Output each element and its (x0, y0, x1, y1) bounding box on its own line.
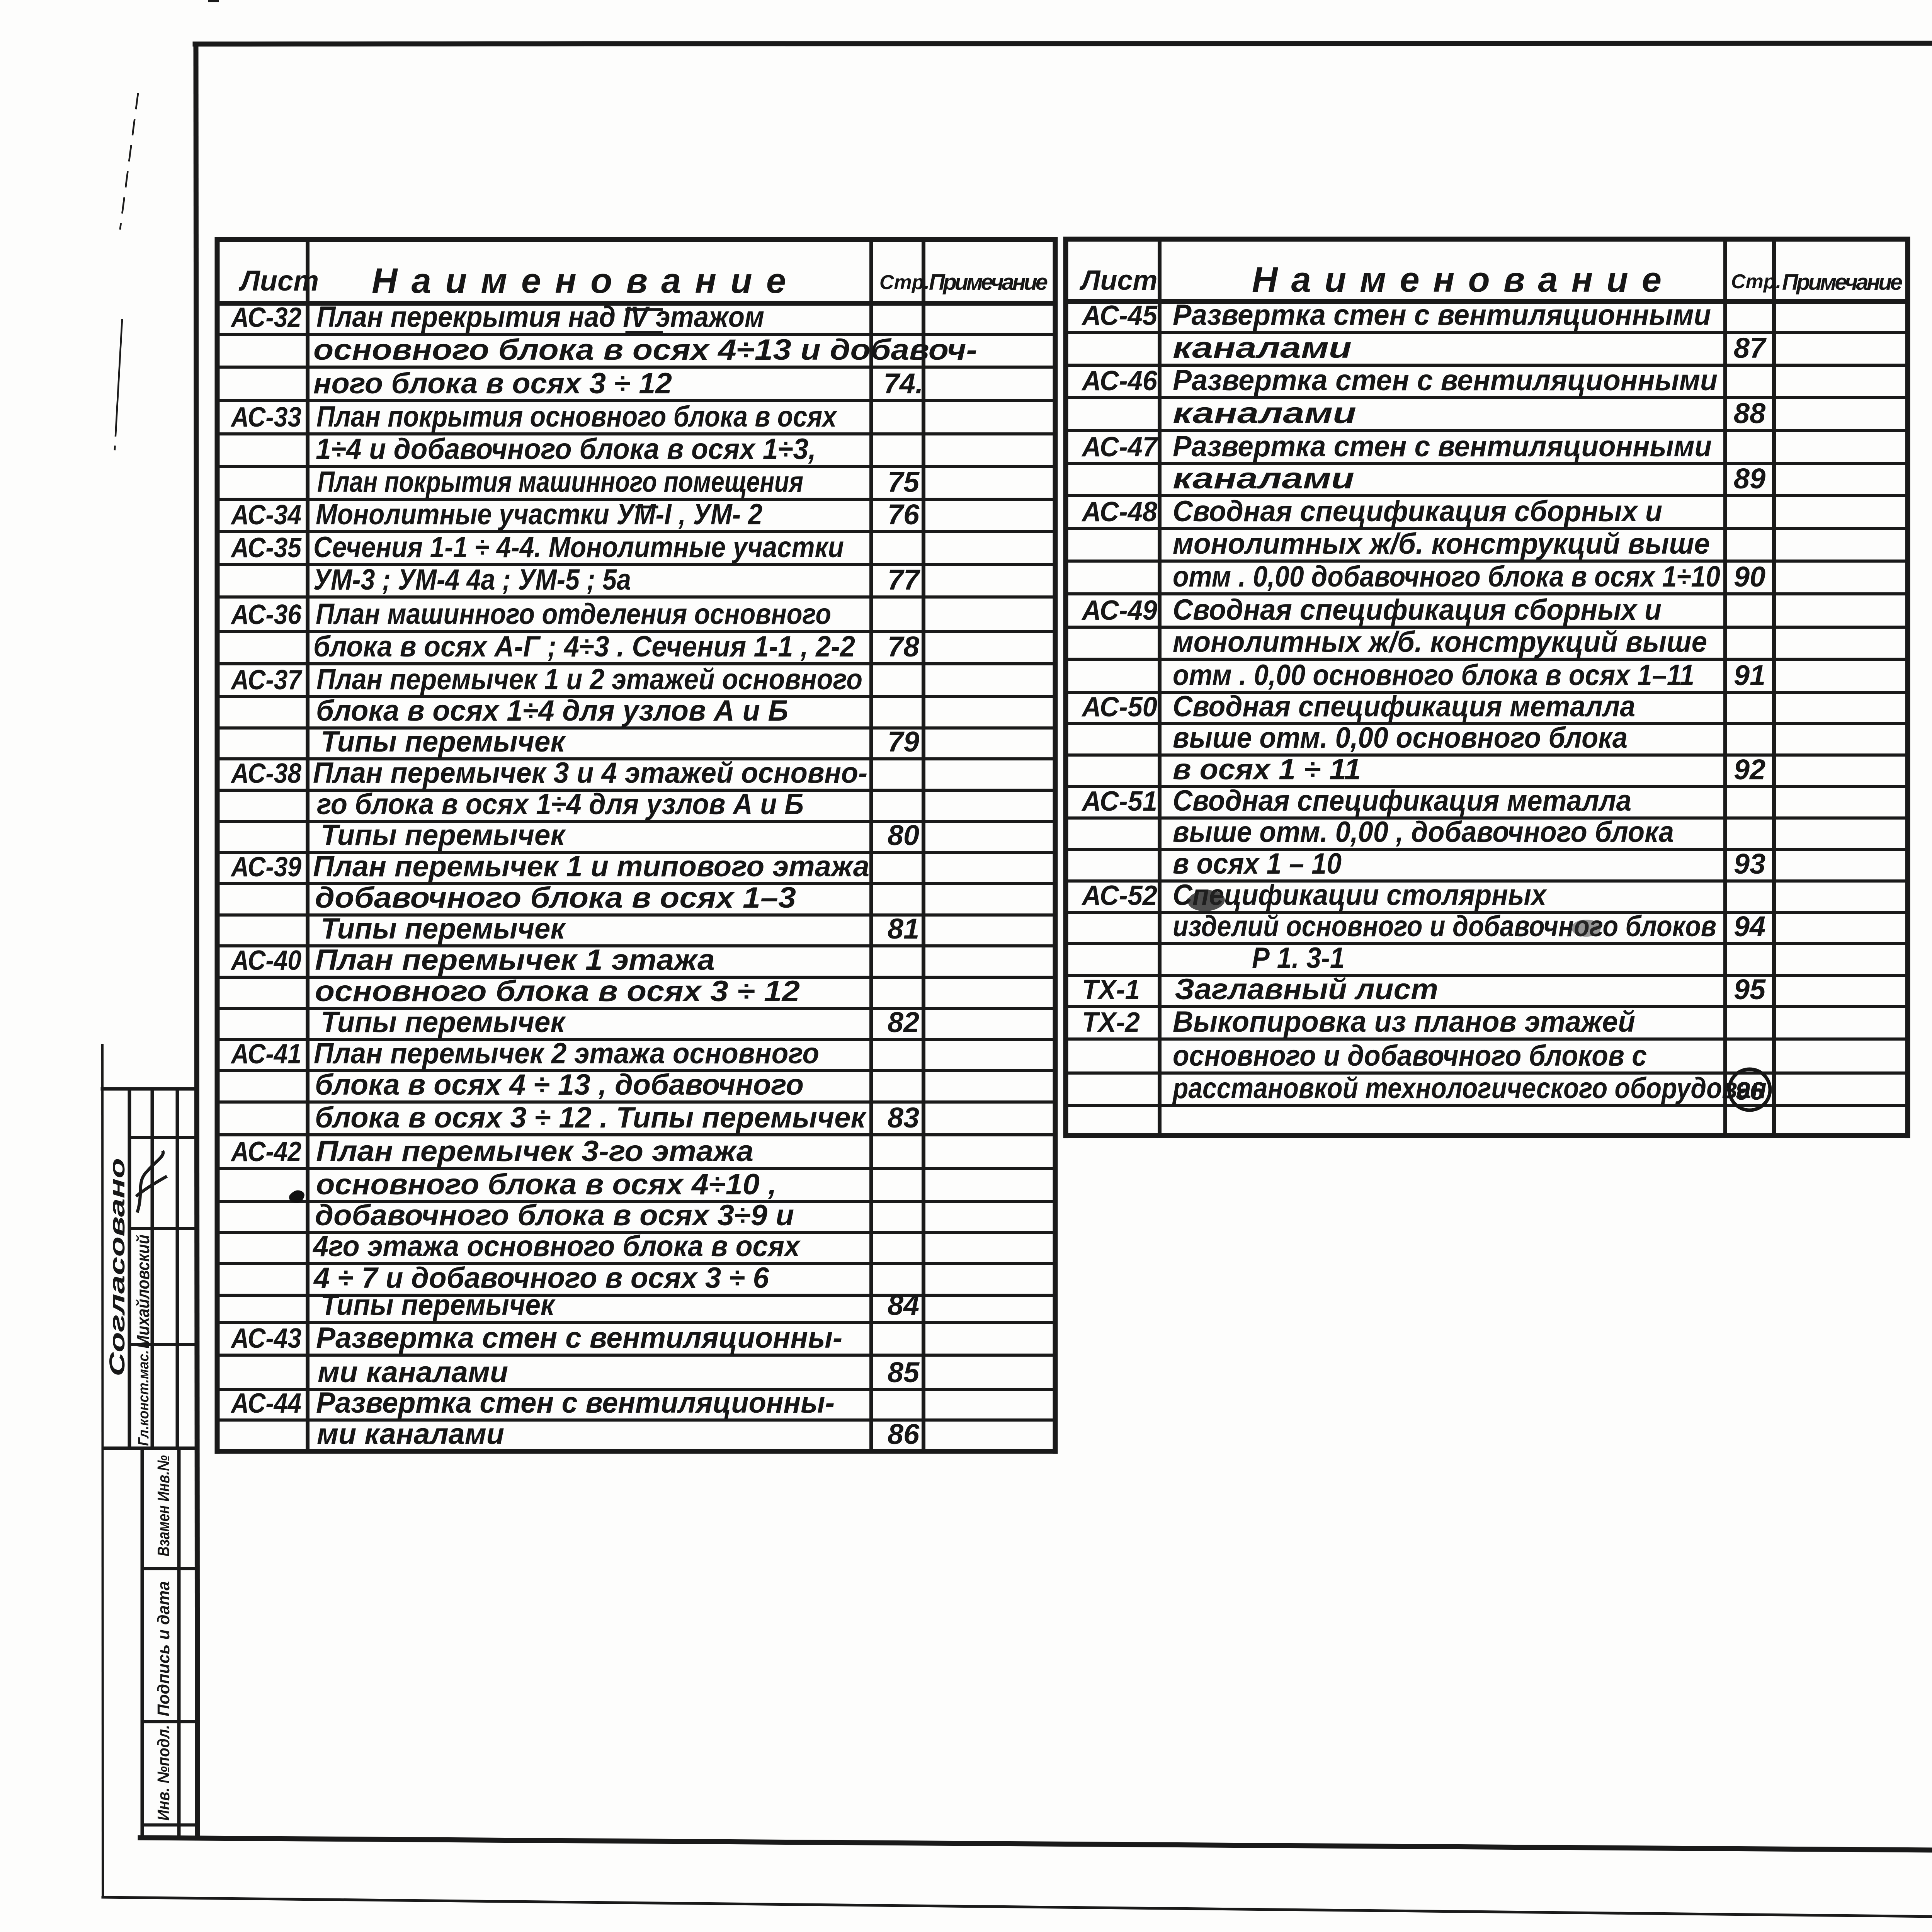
svg-text:блока в осях 4 ÷ 13 , доба: блока в осях 4 ÷ 13 , добавочного (315, 1068, 804, 1101)
svg-text:92: 92 (1734, 753, 1765, 786)
svg-text:Типы перемычек: Типы перемычек (321, 725, 566, 758)
svg-text:83: 83 (888, 1102, 919, 1134)
svg-text:АС-35: АС-35 (230, 532, 302, 563)
svg-text:АС-52: АС-52 (1081, 880, 1157, 911)
svg-text:АС-39: АС-39 (230, 852, 301, 883)
svg-text:ного блока в осях 3 ÷ 12: ного блока в осях 3 ÷ 12 (313, 367, 672, 400)
svg-text:90: 90 (1734, 561, 1765, 593)
svg-text:94: 94 (1734, 910, 1765, 942)
svg-text:основного блока в осях 4÷13: основного блока в осях 4÷13 и добавоч- (313, 333, 977, 366)
svg-text:АС-50: АС-50 (1081, 692, 1157, 723)
svg-text:Типы перемычек: Типы перемычек (321, 1289, 556, 1321)
svg-text:Михайловский: Михайловский (133, 1235, 153, 1349)
svg-text:Типы перемычек: Типы перемычек (321, 1006, 566, 1039)
svg-text:Сводная спецификация металл: Сводная спецификация металла (1173, 784, 1631, 817)
svg-text:Лист: Лист (238, 265, 319, 297)
svg-text:АС-47: АС-47 (1081, 432, 1158, 463)
svg-text:План перемычек 3-го этажа: План перемычек 3-го этажа (316, 1135, 753, 1168)
svg-text:отм . 0,00 добавочного блока: отм . 0,00 добавочного блока в осях 1÷10 (1173, 560, 1720, 593)
svg-text:ТХ-2: ТХ-2 (1082, 1007, 1140, 1038)
svg-text:75: 75 (888, 466, 920, 498)
svg-text:План перемычек 2 этажа осн: План перемычек 2 этажа основного (314, 1037, 819, 1070)
svg-text:Стр.: Стр. (879, 271, 930, 294)
svg-text:80: 80 (888, 819, 919, 851)
svg-text:ТХ-1: ТХ-1 (1082, 975, 1140, 1005)
svg-text:Развертка стен с вентиляци: Развертка стен с вентиляционны- (316, 1321, 842, 1354)
svg-text:монолитных ж/б. конструкций: монолитных ж/б. конструкций выше (1173, 527, 1710, 560)
svg-text:ми каналами: ми каналами (317, 1418, 504, 1451)
svg-text:АС-51: АС-51 (1081, 786, 1157, 817)
svg-text:Развертка стен с вентиляцио: Развертка стен с вентиляционны- (316, 1386, 835, 1419)
svg-text:План машинного отделения ос: План машинного отделения основного (316, 598, 831, 631)
svg-text:АС-42: АС-42 (230, 1136, 301, 1167)
svg-text:Сводная спецификация металл: Сводная спецификация металла (1173, 690, 1635, 723)
svg-text:План перемычек 1 и 2 этажей: План перемычек 1 и 2 этажей основного (316, 663, 862, 696)
svg-text:блока в осях 1÷4 для узло: блока в осях 1÷4 для узлов А и Б (316, 694, 788, 727)
svg-text:77: 77 (888, 564, 921, 596)
svg-text:добавочного блока в осях: добавочного блока в осях 3÷9 и (315, 1199, 794, 1232)
svg-text:Примечание: Примечание (929, 270, 1048, 295)
svg-text:расстановкой технологического: расстановкой технологического оборудован (1172, 1072, 1767, 1105)
svg-text:АС-32: АС-32 (230, 302, 301, 333)
svg-text:4го этажа основного блока: 4го этажа основного блока в осях (312, 1230, 801, 1263)
svg-text:87: 87 (1734, 332, 1767, 364)
svg-text:Сводная спецификация сборны: Сводная спецификация сборных и (1173, 594, 1662, 626)
svg-text:89: 89 (1734, 463, 1765, 495)
svg-text:Развертка стен с вентиляцион: Развертка стен с вентиляционными (1173, 364, 1718, 397)
svg-text:в осях 1 ÷ 11: в осях 1 ÷ 11 (1173, 753, 1361, 786)
svg-text:Типы перемычек: Типы перемычек (321, 819, 566, 852)
svg-text:85: 85 (888, 1356, 920, 1388)
svg-text:Взамен Инв.№: Взамен Инв.№ (154, 1455, 173, 1556)
svg-text:АС-38: АС-38 (230, 758, 301, 789)
svg-text:Инв. №подл.: Инв. №подл. (154, 1725, 173, 1821)
svg-text:АС-43: АС-43 (230, 1323, 301, 1354)
svg-text:ми каналами: ми каналами (318, 1356, 508, 1389)
svg-text:АС-44: АС-44 (230, 1388, 301, 1419)
svg-text:АС-33: АС-33 (230, 402, 301, 433)
svg-text:76: 76 (888, 498, 920, 531)
svg-text:Примечание: Примечание (1782, 270, 1903, 295)
svg-text:Развертка стен с вентиляцио: Развертка стен с вентиляционными (1173, 299, 1711, 332)
svg-text:изделий основного и добавоч: изделий основного и добавочного блоков (1173, 910, 1716, 943)
svg-text:АС-45: АС-45 (1081, 300, 1158, 331)
svg-text:78: 78 (888, 631, 920, 663)
svg-text:74.: 74. (884, 367, 923, 400)
svg-text:основного блока в осях: основного блока в осях 4÷10 , (316, 1168, 777, 1201)
svg-text:Выкопировка из планов эта: Выкопировка из планов этажей (1173, 1005, 1635, 1038)
svg-text:Лист: Лист (1079, 265, 1158, 296)
svg-text:Стр.: Стр. (1731, 270, 1781, 293)
svg-text:91: 91 (1734, 659, 1765, 691)
svg-text:План перемычек 1 и типовог: План перемычек 1 и типового этажа (313, 850, 869, 883)
svg-text:88: 88 (1734, 397, 1766, 429)
svg-text:Сводная спецификация сборных: Сводная спецификация сборных и (1173, 495, 1662, 528)
svg-text:Подпись и дата: Подпись и дата (154, 1581, 173, 1716)
svg-text:добавочного блока в осях: добавочного блока в осях 1–3 (315, 881, 796, 914)
svg-text:го блока в осях 1÷4 для: го блока в осях 1÷4 для узлов А и Б (317, 788, 804, 821)
svg-text:Р 1. 3-1: Р 1. 3-1 (1252, 942, 1345, 975)
svg-text:Гл.конст.мас.: Гл.конст.мас. (136, 1350, 152, 1446)
svg-text:блока в осях 3 ÷ 12 . Типы: блока в осях 3 ÷ 12 . Типы перемычек (315, 1101, 867, 1134)
svg-text:План покрытия основного бло: План покрытия основного блока в осях (316, 400, 837, 433)
svg-text:выше отм. 0,00 основного б: выше отм. 0,00 основного блока (1173, 721, 1628, 754)
svg-text:Заглавный лист: Заглавный лист (1175, 973, 1438, 1006)
svg-text:блока в осях А-Г ; 4÷3 . Се: блока в осях А-Г ; 4÷3 . Сечения 1-1 , 2… (313, 630, 855, 663)
svg-text:основного блока в осях 3: основного блока в осях 3 ÷ 12 (315, 975, 800, 1008)
svg-text:План перемычек 3 и 4 этажей: План перемычек 3 и 4 этажей основно- (313, 757, 867, 789)
svg-text:выше отм. 0,00 , добавочног: выше отм. 0,00 , добавочного блока (1173, 816, 1674, 849)
svg-text:основного и добавочного б: основного и добавочного блоков с (1173, 1039, 1647, 1072)
svg-text:АС-41: АС-41 (230, 1039, 301, 1070)
svg-text:каналами: каналами (1173, 462, 1354, 495)
svg-text:82: 82 (888, 1006, 919, 1038)
svg-text:Монолитные участки УМ-І , УМ: Монолитные участки УМ-І , УМ- 2 (316, 498, 762, 531)
svg-text:93: 93 (1734, 848, 1765, 880)
svg-text:Сечения 1-1 ÷ 4-4. Монолитные: Сечения 1-1 ÷ 4-4. Монолитные участки (313, 531, 844, 564)
svg-text:Спецификации столярных: Спецификации столярных (1173, 879, 1548, 912)
svg-text:Типы перемычек: Типы перемычек (321, 912, 566, 945)
svg-text:95: 95 (1734, 973, 1766, 1005)
svg-text:УМ-3 ; УМ-4 4а ; УМ-5 ; 5а: УМ-3 ; УМ-4 4а ; УМ-5 ; 5а (313, 563, 631, 596)
svg-text:АС-37: АС-37 (230, 665, 302, 696)
svg-text:Развертка стен с вентиляцио: Развертка стен с вентиляционными (1173, 430, 1712, 463)
svg-text:отм . 0,00 основного блока: отм . 0,00 основного блока в осях 1–11 (1173, 659, 1694, 692)
svg-text:79: 79 (888, 726, 919, 758)
svg-text:План перекрытия над ІV этажом: План перекрытия над ІV этажом (316, 301, 764, 333)
svg-text:Согласовано: Согласовано (105, 1158, 129, 1376)
svg-text:каналами: каналами (1173, 332, 1352, 364)
svg-text:План перемычек 1 этажа: План перемычек 1 этажа (315, 944, 715, 976)
svg-text:96: 96 (1735, 1077, 1764, 1105)
svg-text:1÷4 и добавочного блока в о: 1÷4 и добавочного блока в осях 1÷3, (316, 433, 816, 466)
svg-text:АС-46: АС-46 (1081, 366, 1158, 396)
svg-text:монолитных ж/б. конструкций: монолитных ж/б. конструкций выше (1173, 626, 1707, 658)
svg-text:каналами: каналами (1173, 397, 1356, 430)
svg-text:АС-34: АС-34 (230, 500, 301, 531)
svg-text:в осях 1 – 10: в осях 1 – 10 (1173, 847, 1342, 880)
svg-text:84: 84 (888, 1289, 919, 1321)
svg-text:86: 86 (888, 1418, 920, 1450)
svg-text:АС-40: АС-40 (230, 945, 301, 976)
svg-text:АС-48: АС-48 (1081, 497, 1157, 527)
svg-text:План покрытия машинного пом: План покрытия машинного помещения (317, 466, 803, 498)
svg-text:АС-36: АС-36 (230, 599, 302, 630)
svg-text:АС-49: АС-49 (1081, 595, 1157, 626)
svg-text:81: 81 (888, 913, 919, 945)
